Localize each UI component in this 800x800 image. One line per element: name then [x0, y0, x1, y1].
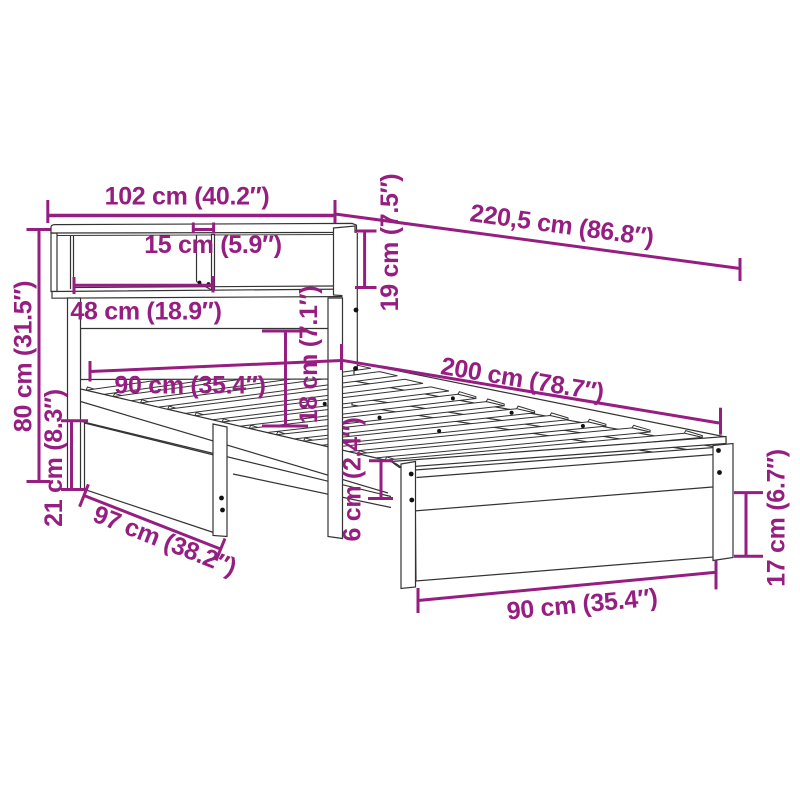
svg-text:17 cm (6.7″): 17 cm (6.7″): [763, 449, 791, 587]
svg-text:18 cm (7.1″): 18 cm (7.1″): [295, 286, 323, 424]
svg-text:80 cm (31.5″): 80 cm (31.5″): [10, 281, 38, 432]
svg-text:48 cm (18.9″): 48 cm (18.9″): [70, 298, 221, 326]
svg-text:21 cm (8.3″): 21 cm (8.3″): [40, 389, 68, 527]
svg-text:6 cm (2.4″): 6 cm (2.4″): [339, 417, 367, 541]
svg-text:19 cm (7.5″): 19 cm (7.5″): [376, 174, 404, 312]
svg-text:90 cm (35.4″): 90 cm (35.4″): [114, 372, 265, 400]
svg-text:102 cm (40.2″): 102 cm (40.2″): [105, 183, 270, 211]
svg-text:15 cm (5.9″): 15 cm (5.9″): [144, 231, 282, 259]
